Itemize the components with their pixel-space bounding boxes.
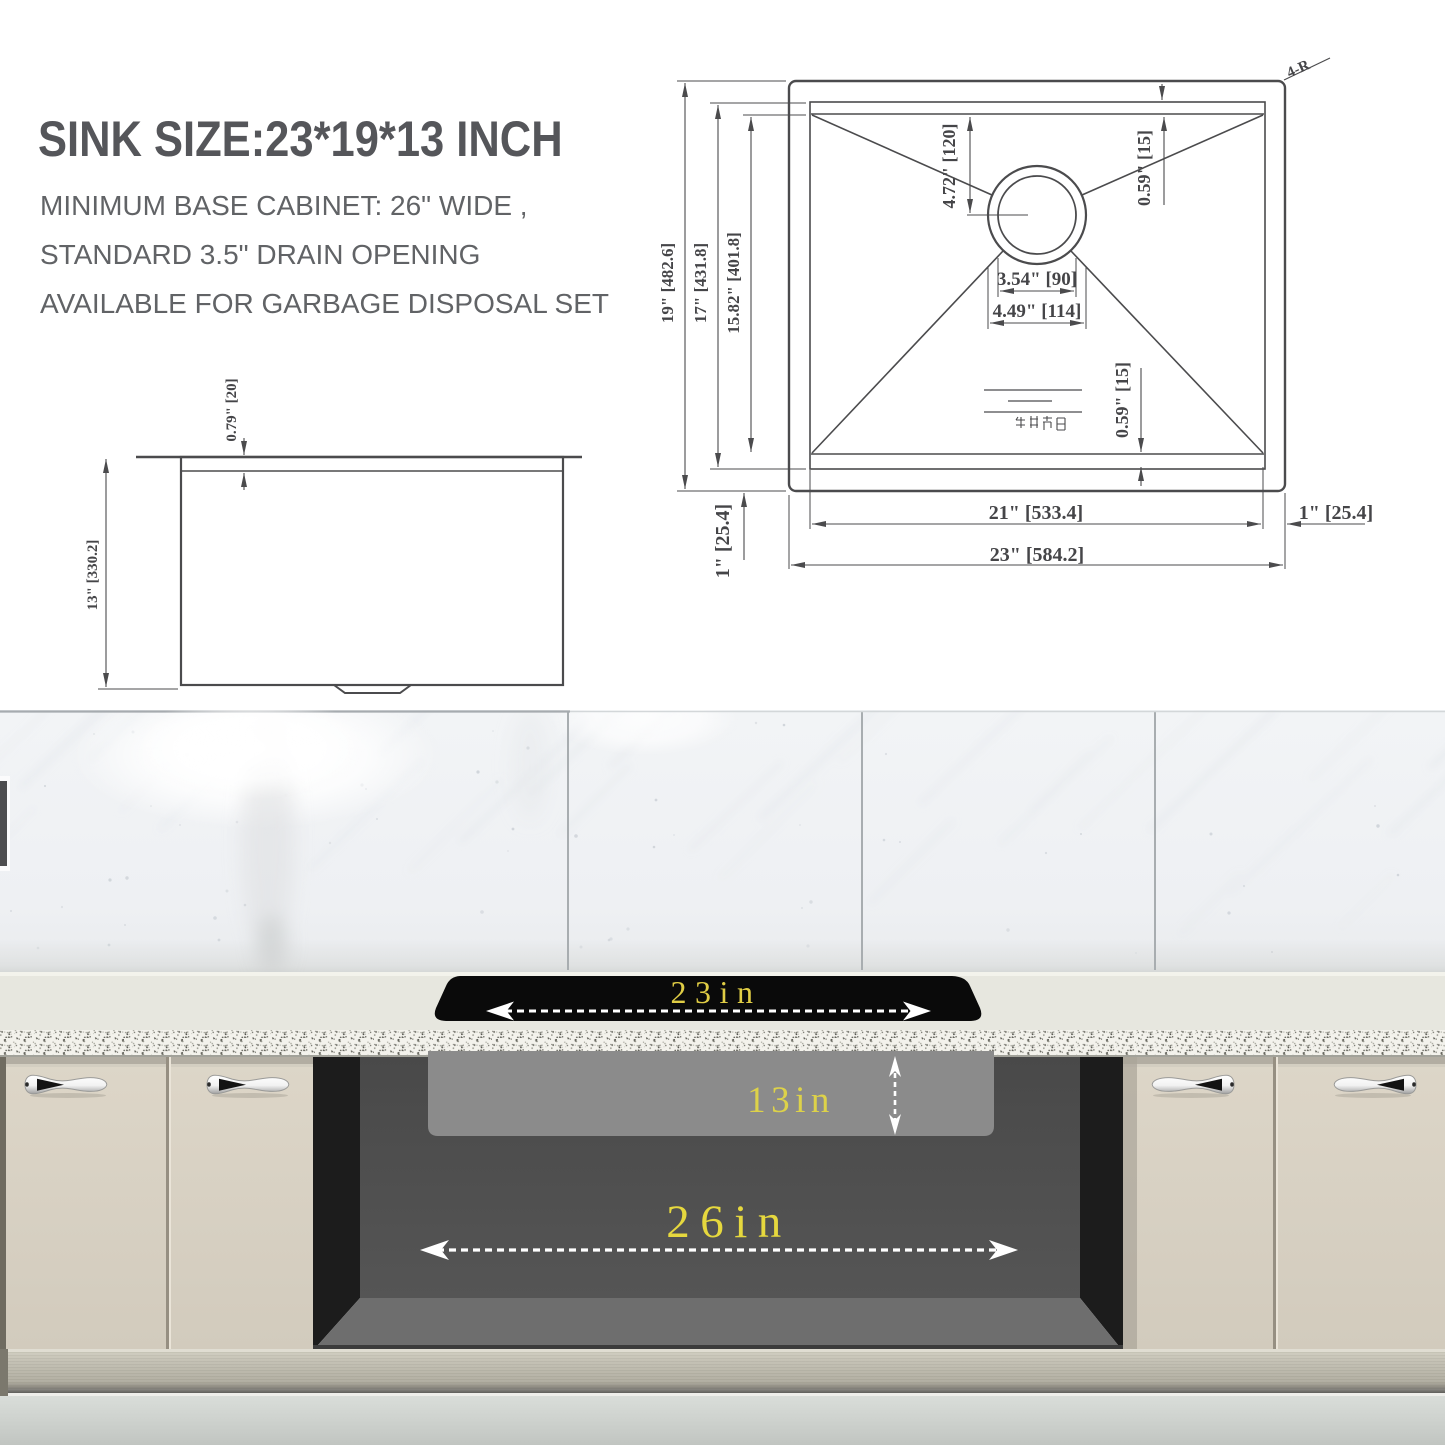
svg-text:26in: 26in (666, 1196, 792, 1248)
svg-text:4.49" [114]: 4.49" [114] (993, 301, 1082, 322)
svg-text:1" [25.4]: 1" [25.4] (1299, 502, 1373, 524)
svg-text:13in: 13in (747, 1080, 835, 1121)
svg-text:4.72" [120]: 4.72" [120] (939, 124, 959, 209)
svg-text:13" [330.2]: 13" [330.2] (85, 540, 101, 611)
svg-text:17" [431.8]: 17" [431.8] (691, 243, 710, 323)
svg-text:3.54" [90]: 3.54" [90] (997, 269, 1077, 290)
svg-text:1" [25.4]: 1" [25.4] (712, 504, 734, 578)
svg-text:21" [533.4]: 21" [533.4] (989, 502, 1083, 524)
svg-text:4-R: 4-R (1284, 57, 1312, 81)
svg-text:15.82" [401.8]: 15.82" [401.8] (724, 232, 743, 334)
svg-text:23" [584.2]: 23" [584.2] (990, 544, 1084, 566)
svg-text:0.59" [15]: 0.59" [15] (1112, 362, 1132, 438)
svg-text:23in: 23in (671, 974, 762, 1010)
svg-text:0.79" [20]: 0.79" [20] (224, 378, 240, 441)
svg-text:0.59" [15]: 0.59" [15] (1134, 130, 1154, 206)
svg-text:19" [482.6]: 19" [482.6] (658, 243, 677, 323)
